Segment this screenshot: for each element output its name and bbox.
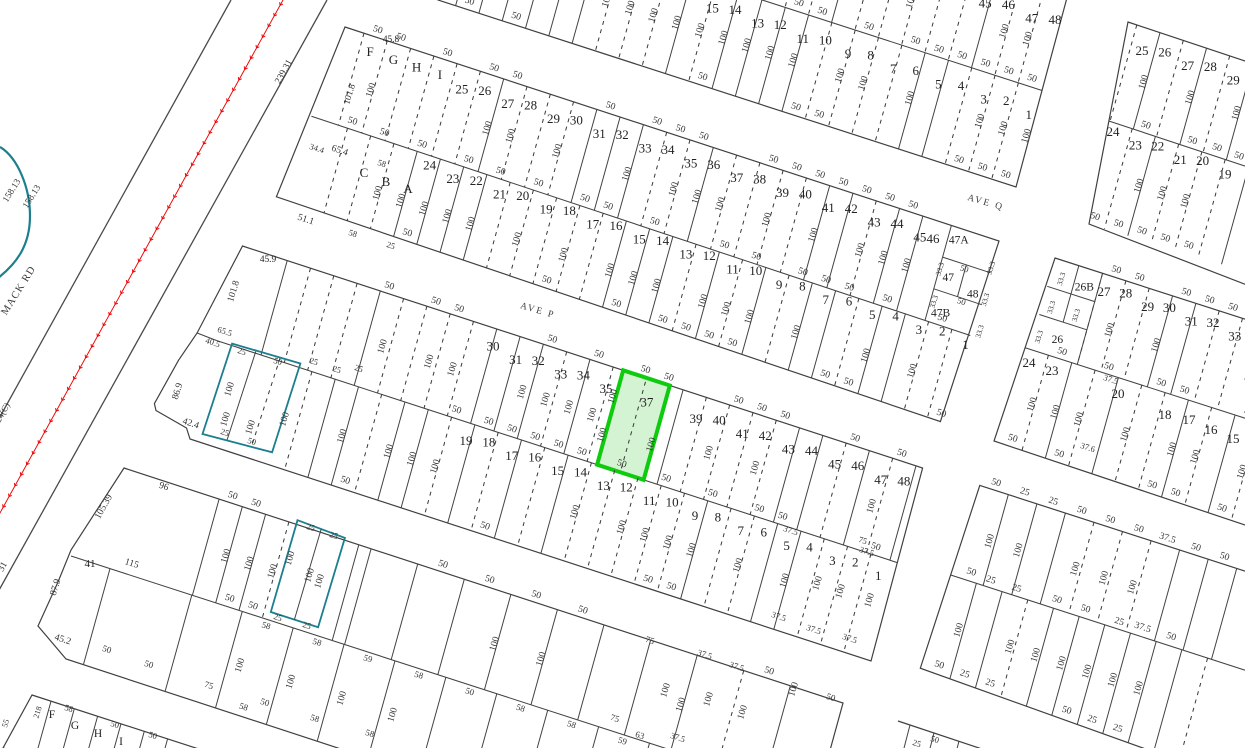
svg-text:21: 21: [493, 186, 506, 201]
svg-text:15: 15: [706, 0, 719, 15]
svg-text:1: 1: [1026, 107, 1033, 122]
svg-text:48: 48: [897, 473, 910, 488]
svg-text:14: 14: [729, 2, 743, 17]
svg-text:47: 47: [943, 272, 955, 284]
svg-text:33: 33: [1228, 328, 1241, 343]
svg-text:29: 29: [547, 111, 560, 126]
svg-text:7: 7: [822, 292, 829, 307]
svg-text:3: 3: [980, 92, 987, 107]
svg-text:19: 19: [460, 433, 473, 448]
svg-text:31: 31: [1185, 314, 1198, 329]
svg-text:2: 2: [1003, 93, 1010, 108]
svg-text:I: I: [119, 736, 123, 748]
svg-text:15: 15: [633, 232, 646, 247]
svg-text:35: 35: [684, 155, 697, 170]
svg-text:25: 25: [1136, 43, 1149, 58]
svg-text:17: 17: [586, 217, 600, 232]
svg-text:29: 29: [1227, 73, 1240, 88]
svg-text:15: 15: [1227, 431, 1240, 446]
svg-text:13: 13: [597, 478, 610, 493]
svg-text:45: 45: [913, 229, 926, 244]
svg-text:12: 12: [703, 248, 716, 263]
svg-text:3: 3: [829, 553, 836, 568]
svg-text:10: 10: [819, 32, 832, 47]
svg-text:40: 40: [799, 186, 812, 201]
svg-text:12: 12: [620, 480, 633, 495]
svg-text:17: 17: [505, 448, 519, 463]
svg-text:26: 26: [1052, 334, 1064, 346]
svg-text:16: 16: [1205, 422, 1219, 437]
svg-text:26: 26: [478, 83, 492, 98]
svg-text:F: F: [366, 44, 373, 59]
svg-text:18: 18: [482, 435, 495, 450]
svg-text:33: 33: [639, 141, 652, 156]
svg-text:14: 14: [574, 465, 588, 480]
svg-text:A: A: [403, 181, 413, 196]
svg-text:2: 2: [939, 324, 946, 339]
svg-text:43: 43: [868, 215, 881, 230]
svg-text:H: H: [412, 60, 421, 75]
svg-text:10: 10: [749, 263, 762, 278]
svg-text:20: 20: [1196, 153, 1209, 168]
svg-text:48: 48: [967, 289, 979, 301]
svg-text:39: 39: [690, 411, 703, 426]
svg-text:45.9: 45.9: [260, 255, 277, 265]
svg-text:11: 11: [643, 493, 656, 508]
svg-text:42: 42: [759, 428, 772, 443]
svg-text:9: 9: [776, 277, 783, 292]
svg-text:18: 18: [1159, 407, 1172, 422]
svg-text:31: 31: [593, 126, 606, 141]
svg-text:13: 13: [679, 247, 692, 262]
svg-text:26B: 26B: [1075, 282, 1095, 294]
svg-text:23: 23: [446, 171, 459, 186]
svg-text:I: I: [438, 67, 442, 82]
svg-text:16: 16: [610, 218, 624, 233]
svg-text:24: 24: [1107, 124, 1121, 139]
svg-text:2: 2: [852, 555, 859, 570]
svg-text:44: 44: [805, 443, 819, 458]
svg-text:11: 11: [797, 31, 810, 46]
svg-text:9: 9: [845, 46, 852, 61]
svg-text:32: 32: [1207, 315, 1220, 330]
svg-text:31: 31: [509, 352, 522, 367]
svg-text:28: 28: [1204, 59, 1217, 74]
svg-text:43: 43: [782, 441, 795, 456]
svg-text:33: 33: [554, 366, 567, 381]
svg-text:7: 7: [890, 61, 897, 76]
svg-text:3: 3: [916, 322, 923, 337]
svg-text:27: 27: [1181, 58, 1195, 73]
svg-text:19: 19: [540, 201, 553, 216]
svg-text:16: 16: [683, 0, 697, 2]
svg-text:28: 28: [524, 98, 537, 113]
svg-text:B: B: [382, 174, 391, 189]
svg-text:6: 6: [913, 63, 920, 78]
svg-text:28: 28: [1119, 285, 1132, 300]
svg-text:37: 37: [730, 170, 744, 185]
svg-text:19: 19: [1219, 167, 1232, 182]
svg-text:27: 27: [1098, 284, 1112, 299]
svg-text:20: 20: [1112, 386, 1125, 401]
svg-text:22: 22: [1151, 139, 1164, 154]
svg-text:12: 12: [774, 17, 787, 32]
svg-text:8: 8: [799, 278, 806, 293]
svg-text:26: 26: [1158, 44, 1172, 59]
svg-text:46: 46: [851, 458, 865, 473]
svg-text:22: 22: [470, 173, 483, 188]
svg-text:44: 44: [891, 216, 905, 231]
svg-text:46: 46: [927, 231, 941, 246]
svg-text:24: 24: [1023, 355, 1037, 370]
svg-text:38: 38: [753, 172, 766, 187]
svg-text:21: 21: [1174, 152, 1187, 167]
svg-text:6: 6: [846, 293, 853, 308]
svg-text:18: 18: [563, 203, 576, 218]
svg-text:39: 39: [776, 185, 789, 200]
svg-text:25: 25: [455, 81, 468, 96]
svg-text:29: 29: [1141, 299, 1154, 314]
svg-text:27: 27: [501, 96, 515, 111]
svg-text:23: 23: [1046, 363, 1059, 378]
svg-text:23: 23: [1129, 137, 1142, 152]
svg-text:6: 6: [760, 525, 767, 540]
svg-text:14: 14: [656, 233, 670, 248]
svg-text:47A: 47A: [949, 235, 970, 247]
svg-text:G: G: [389, 52, 398, 67]
svg-text:24: 24: [423, 158, 437, 173]
svg-text:H: H: [94, 728, 102, 740]
svg-text:F: F: [49, 709, 55, 721]
svg-text:7: 7: [738, 523, 745, 538]
svg-text:30: 30: [570, 112, 583, 127]
svg-text:48: 48: [1049, 12, 1062, 27]
svg-text:9: 9: [692, 508, 699, 523]
svg-text:5: 5: [935, 76, 942, 91]
svg-text:32: 32: [616, 127, 629, 142]
svg-text:47: 47: [1025, 11, 1039, 26]
svg-text:45: 45: [979, 0, 992, 10]
svg-text:34: 34: [662, 142, 676, 157]
svg-text:41: 41: [822, 200, 835, 215]
svg-text:36: 36: [707, 157, 721, 172]
svg-text:30: 30: [487, 339, 500, 354]
svg-text:13: 13: [751, 16, 764, 31]
svg-text:8: 8: [715, 510, 722, 525]
svg-text:46: 46: [1002, 0, 1016, 12]
svg-text:5: 5: [869, 307, 876, 322]
svg-text:40: 40: [713, 413, 726, 428]
svg-text:34: 34: [577, 368, 591, 383]
svg-text:42: 42: [845, 201, 858, 216]
svg-text:47: 47: [874, 472, 888, 487]
svg-text:41: 41: [736, 426, 749, 441]
svg-text:17: 17: [1183, 412, 1197, 427]
svg-text:1: 1: [875, 568, 882, 583]
svg-text:4: 4: [806, 540, 813, 555]
svg-text:16: 16: [528, 450, 542, 465]
svg-text:11: 11: [726, 262, 739, 277]
svg-text:15: 15: [551, 463, 564, 478]
svg-text:4: 4: [892, 309, 899, 324]
svg-text:32: 32: [532, 353, 545, 368]
svg-text:45.8: 45.8: [383, 35, 400, 45]
svg-text:20: 20: [516, 188, 529, 203]
svg-text:1: 1: [962, 337, 969, 352]
svg-text:C: C: [360, 165, 369, 180]
svg-text:5: 5: [783, 538, 790, 553]
svg-text:4: 4: [958, 78, 965, 93]
svg-text:G: G: [71, 720, 79, 732]
svg-text:37: 37: [640, 394, 654, 409]
svg-text:10: 10: [666, 495, 679, 510]
svg-text:41: 41: [85, 558, 96, 570]
svg-text:30: 30: [1163, 300, 1176, 315]
svg-text:45: 45: [828, 457, 841, 472]
svg-text:8: 8: [867, 48, 874, 63]
